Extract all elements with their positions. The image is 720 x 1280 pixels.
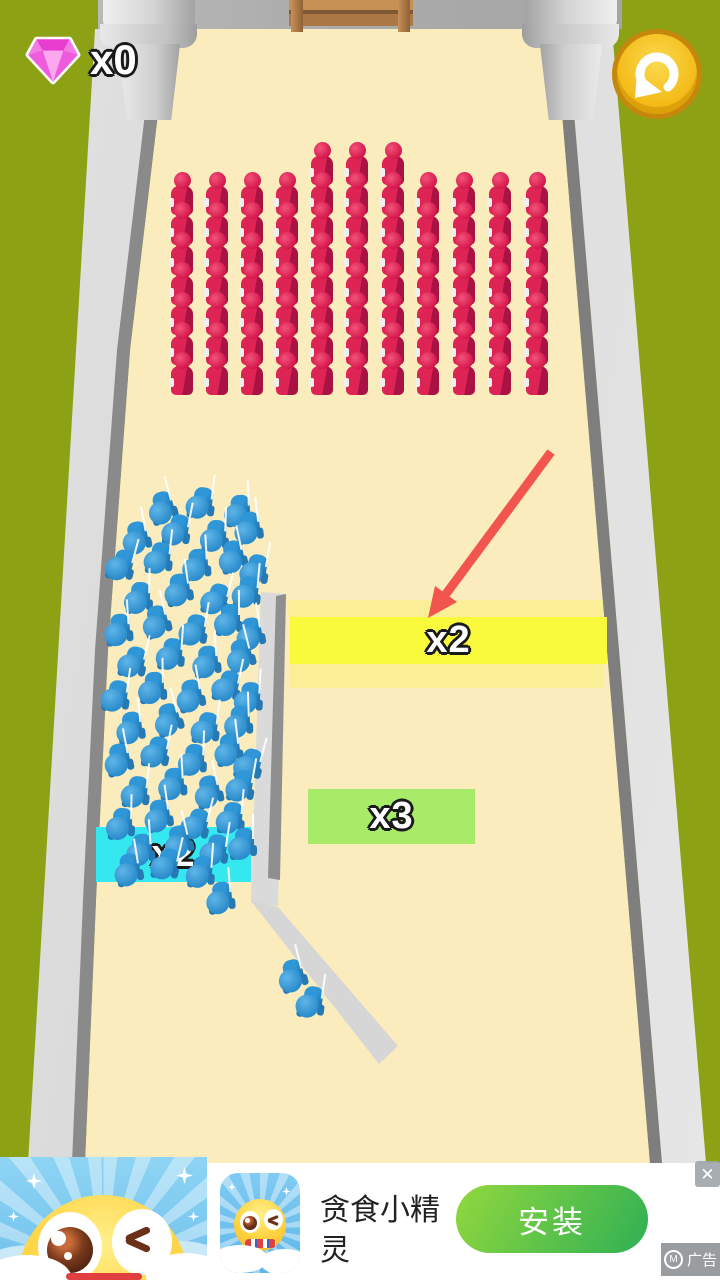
cloud (260, 1249, 300, 1273)
gem-icon (24, 34, 82, 86)
scarf (66, 1273, 142, 1280)
close-icon: ✕ (700, 1166, 714, 1183)
gem-counter: x0 (24, 34, 137, 86)
ad-badge-label: 广告 (687, 1249, 717, 1270)
game-screen: x2 x3 x2 (0, 0, 720, 1280)
ad-network-m-icon: M (664, 1250, 683, 1269)
ad-creative-image[interactable] (0, 1157, 207, 1280)
gem-count-label: x0 (90, 34, 137, 86)
restart-button[interactable] (612, 29, 702, 119)
install-button[interactable]: 安装 (456, 1185, 648, 1253)
game-area[interactable]: x2 x3 x2 (0, 0, 720, 1163)
ad-badge: M 广告 (661, 1243, 720, 1276)
restart-icon (629, 46, 685, 102)
install-button-label: 安装 (518, 1197, 586, 1242)
ad-app-icon[interactable] (220, 1173, 300, 1273)
wink-mark (126, 1227, 156, 1253)
ad-close-button[interactable]: ✕ (695, 1161, 720, 1187)
ad-app-title[interactable]: 贪食小精灵 (320, 1191, 460, 1271)
tutorial-arrow (0, 0, 720, 1163)
